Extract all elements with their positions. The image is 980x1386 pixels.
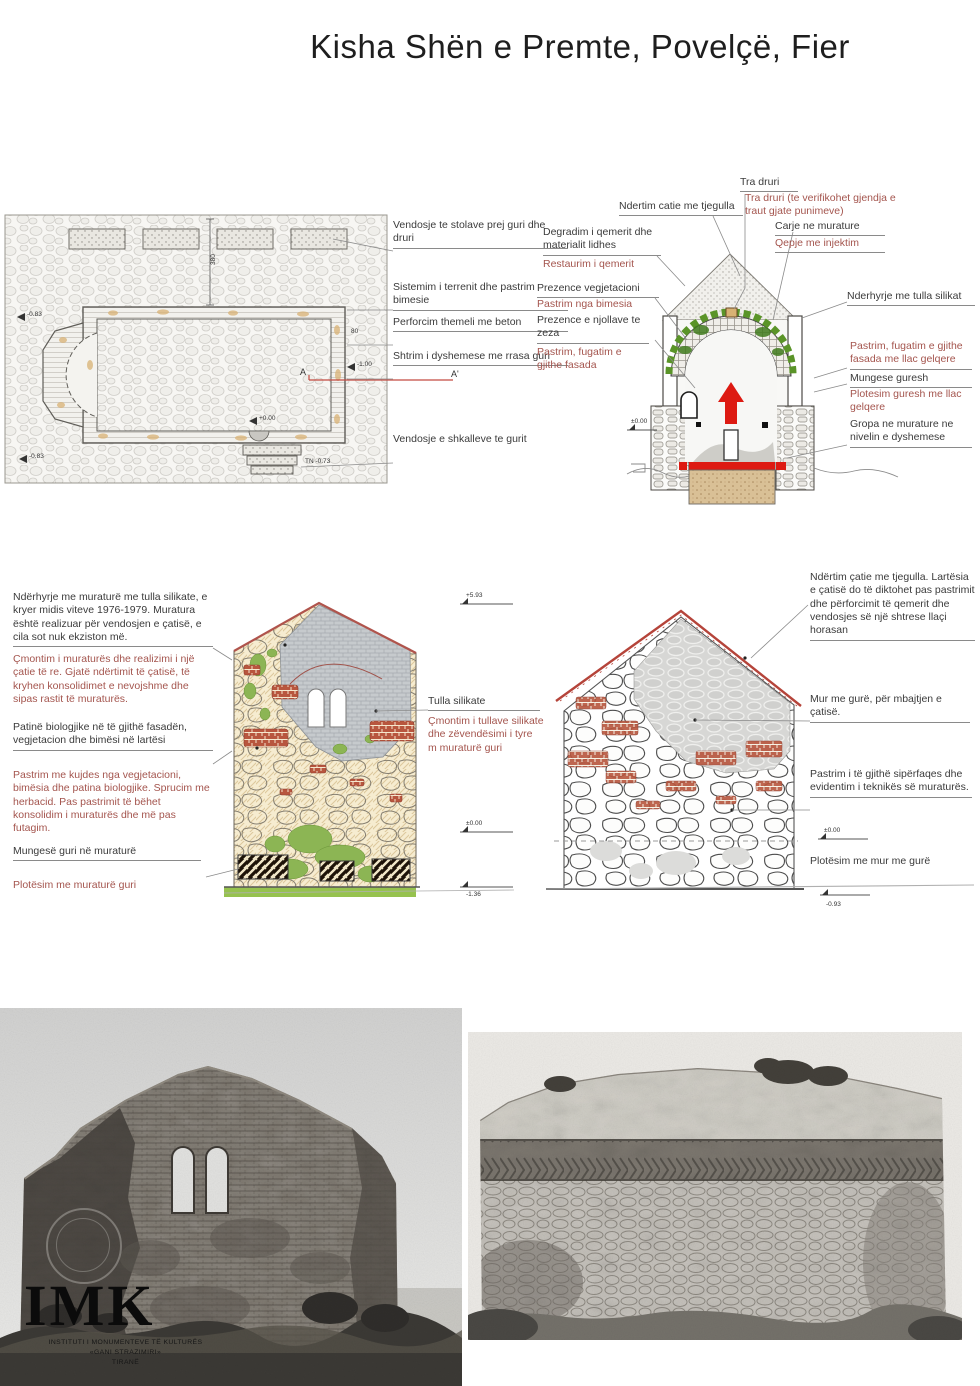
imk-caption: INSTITUTI I MONUMENTEVE TË KULTURËS «GAN… (18, 1338, 233, 1369)
imk-caption-line2: «GANI STRAZIMIRI» (18, 1348, 233, 1358)
section-label-carje: Carje ne murature (775, 220, 885, 236)
plan-mark-left-bottom: -0.83 (29, 453, 44, 460)
plan-mark-tn: TN -0.73 (305, 458, 331, 465)
elevation-left-building (224, 603, 420, 897)
poster-sheet: Kisha Shën e Premte, Povelçë, Fier (0, 0, 980, 1386)
putlog-hole-left (696, 422, 701, 427)
mark-zero: ±0.00 (466, 820, 483, 827)
plan-dim: 380 (210, 254, 217, 265)
mid-label-tulla: Tulla silikate (428, 695, 540, 711)
elevation-right-panel: ±0.00 -0.93 Ndërtim çatie me tjegulla. L… (538, 563, 980, 923)
plan-dim-right: 80 (351, 328, 359, 335)
elevation-right-building (546, 611, 804, 889)
label-roof-construction: Ndërtim çatie me tjegulla. Lartësia e ça… (810, 571, 975, 641)
section-label-pastrim-bimesia: Pastrim nga bimesia (537, 298, 659, 311)
section-mark-a-prime: A' (451, 369, 459, 379)
mark-bottom-right: -0.93 (826, 901, 841, 908)
section-label-tulla: Nderhyrje me tulla silikat (847, 290, 975, 306)
stairs (243, 445, 301, 474)
section-panel: ±0.00 Tra druri Tra druri (te verifikohe… (535, 168, 980, 508)
page-title: Kisha Shën e Premte, Povelçë, Fier (250, 28, 910, 76)
section-label-qepje: Qepje me injektim (775, 237, 885, 253)
note-cleaning: Pastrim me kujdes nga vegjetacioni, bimë… (13, 769, 213, 836)
wooden-beam (726, 308, 737, 317)
floor-red-band (679, 462, 786, 470)
window-slot (724, 430, 738, 460)
section-label-gropa: Gropa ne murature ne nivelin e dyshemese (850, 418, 972, 448)
section-label-njolla: Prezence e njollave te zeza (537, 314, 649, 344)
label-stone-wall: Mur me gurë, për mbajtjen e çatisë. (810, 693, 970, 723)
photo-wall-band (468, 1032, 962, 1340)
plan-panel: -0.83 -0.83 -1.00 +0.00 TN -0.73 380 80 … (3, 205, 588, 497)
section-label-pastrim-fasada: Pastrim, fugatim e gjithe fasada (537, 346, 649, 373)
section-mark-a: A (300, 367, 306, 377)
imk-caption-line1: INSTITUTI I MONUMENTEVE TË KULTURËS (18, 1338, 233, 1348)
plan-mark-left-top: -0.83 (27, 311, 42, 318)
section-label-prezence-veg: Prezence vegjetacioni (537, 282, 659, 298)
label-wall-infill: Plotësim me mur me gurë (810, 855, 960, 868)
note-missing-stone: Mungesë guri në muraturë (13, 845, 201, 861)
mark-top: +5.93 (466, 592, 483, 599)
plan-mark-right: -1.00 (357, 361, 372, 368)
section-label-pastrim-llac: Pastrim, fugatim e gjithe fasada me llac… (850, 340, 972, 370)
imk-caption-line3: TIRANË (18, 1358, 233, 1368)
putlog-hole-right (762, 422, 768, 428)
section-label-restaurim: Restaurim i qemerit (543, 258, 661, 271)
label-surface-cleaning: Pastrim i të gjithë sipërfaqes dhe evide… (810, 768, 972, 798)
note-existing-masonry: Ndërhyrje me muraturë me tulla silikate,… (13, 591, 213, 647)
foundation (689, 470, 775, 504)
elevation-left-panel: +5.93 ±0.00 -1.36 Ndërhyrje me muraturë … (8, 583, 548, 928)
section-label-tra-druri-note: Tra druri (te verifikohet gjendja e trau… (745, 192, 917, 219)
section-label-plotesim: Plotesim guresh me llac gelqere (850, 388, 972, 415)
note-dismantle-roof: Çmontim i muraturës dhe realizimi i një … (13, 653, 213, 706)
plan-mark-stair: +0.00 (259, 415, 276, 422)
section-label-degradim: Degradim i qemerit dhe materialit lidhes (543, 226, 661, 256)
left-niche (681, 392, 697, 418)
window-right (330, 689, 346, 727)
mark-bottom: -1.36 (466, 891, 481, 898)
window-left (308, 689, 324, 727)
note-stone-infill: Plotësim me muraturë guri (13, 879, 201, 892)
mark-zero-right: ±0.00 (824, 827, 841, 834)
section-label-mungese: Mungese guresh (850, 372, 972, 388)
note-biological-patina: Patinë biologjike në të gjithë fasadën, … (13, 721, 213, 751)
mid-label-cmontim: Çmontim i tullave silikate dhe zëvendësi… (428, 715, 544, 755)
imk-acronym: IMK (24, 1280, 155, 1332)
section-label-tra-druri: Tra druri (740, 176, 798, 192)
section-label-catia: Ndertim catie me tjegulla (619, 200, 743, 216)
section-zero-text: ±0.00 (631, 418, 648, 425)
